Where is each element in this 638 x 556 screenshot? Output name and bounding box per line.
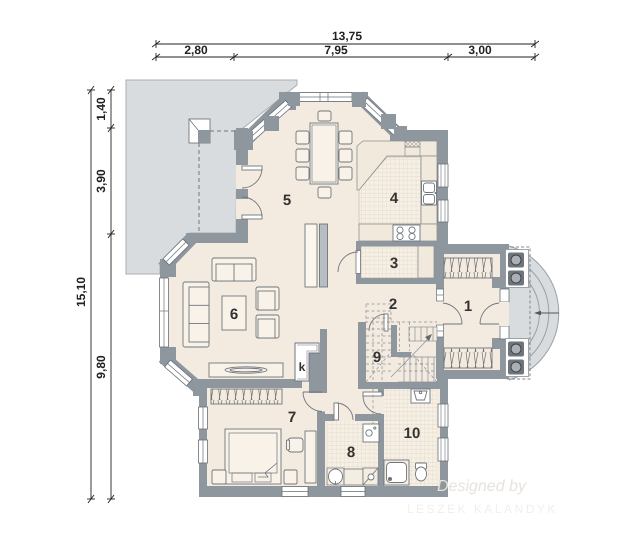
svg-text:1: 1: [464, 298, 472, 315]
svg-text:6: 6: [230, 306, 238, 323]
svg-text:15,10: 15,10: [74, 277, 88, 307]
svg-text:5: 5: [283, 192, 291, 209]
svg-text:2: 2: [389, 296, 397, 313]
svg-text:8: 8: [347, 444, 355, 461]
svg-text:13,75: 13,75: [332, 29, 362, 43]
svg-text:1,40: 1,40: [94, 97, 108, 121]
svg-text:Designed by: Designed by: [437, 478, 527, 495]
svg-text:3,90: 3,90: [94, 169, 108, 193]
svg-text:10: 10: [404, 425, 421, 442]
svg-text:7: 7: [288, 409, 296, 426]
svg-text:LESZEK KALANDYK: LESZEK KALANDYK: [407, 502, 558, 516]
svg-text:3: 3: [390, 255, 398, 272]
svg-text:9,80: 9,80: [94, 355, 108, 379]
svg-text:7,95: 7,95: [324, 43, 348, 57]
svg-text:2,80: 2,80: [184, 43, 208, 57]
svg-text:k: k: [299, 360, 306, 374]
svg-text:3,00: 3,00: [468, 43, 492, 57]
svg-text:9: 9: [373, 349, 381, 366]
svg-text:4: 4: [390, 190, 399, 207]
